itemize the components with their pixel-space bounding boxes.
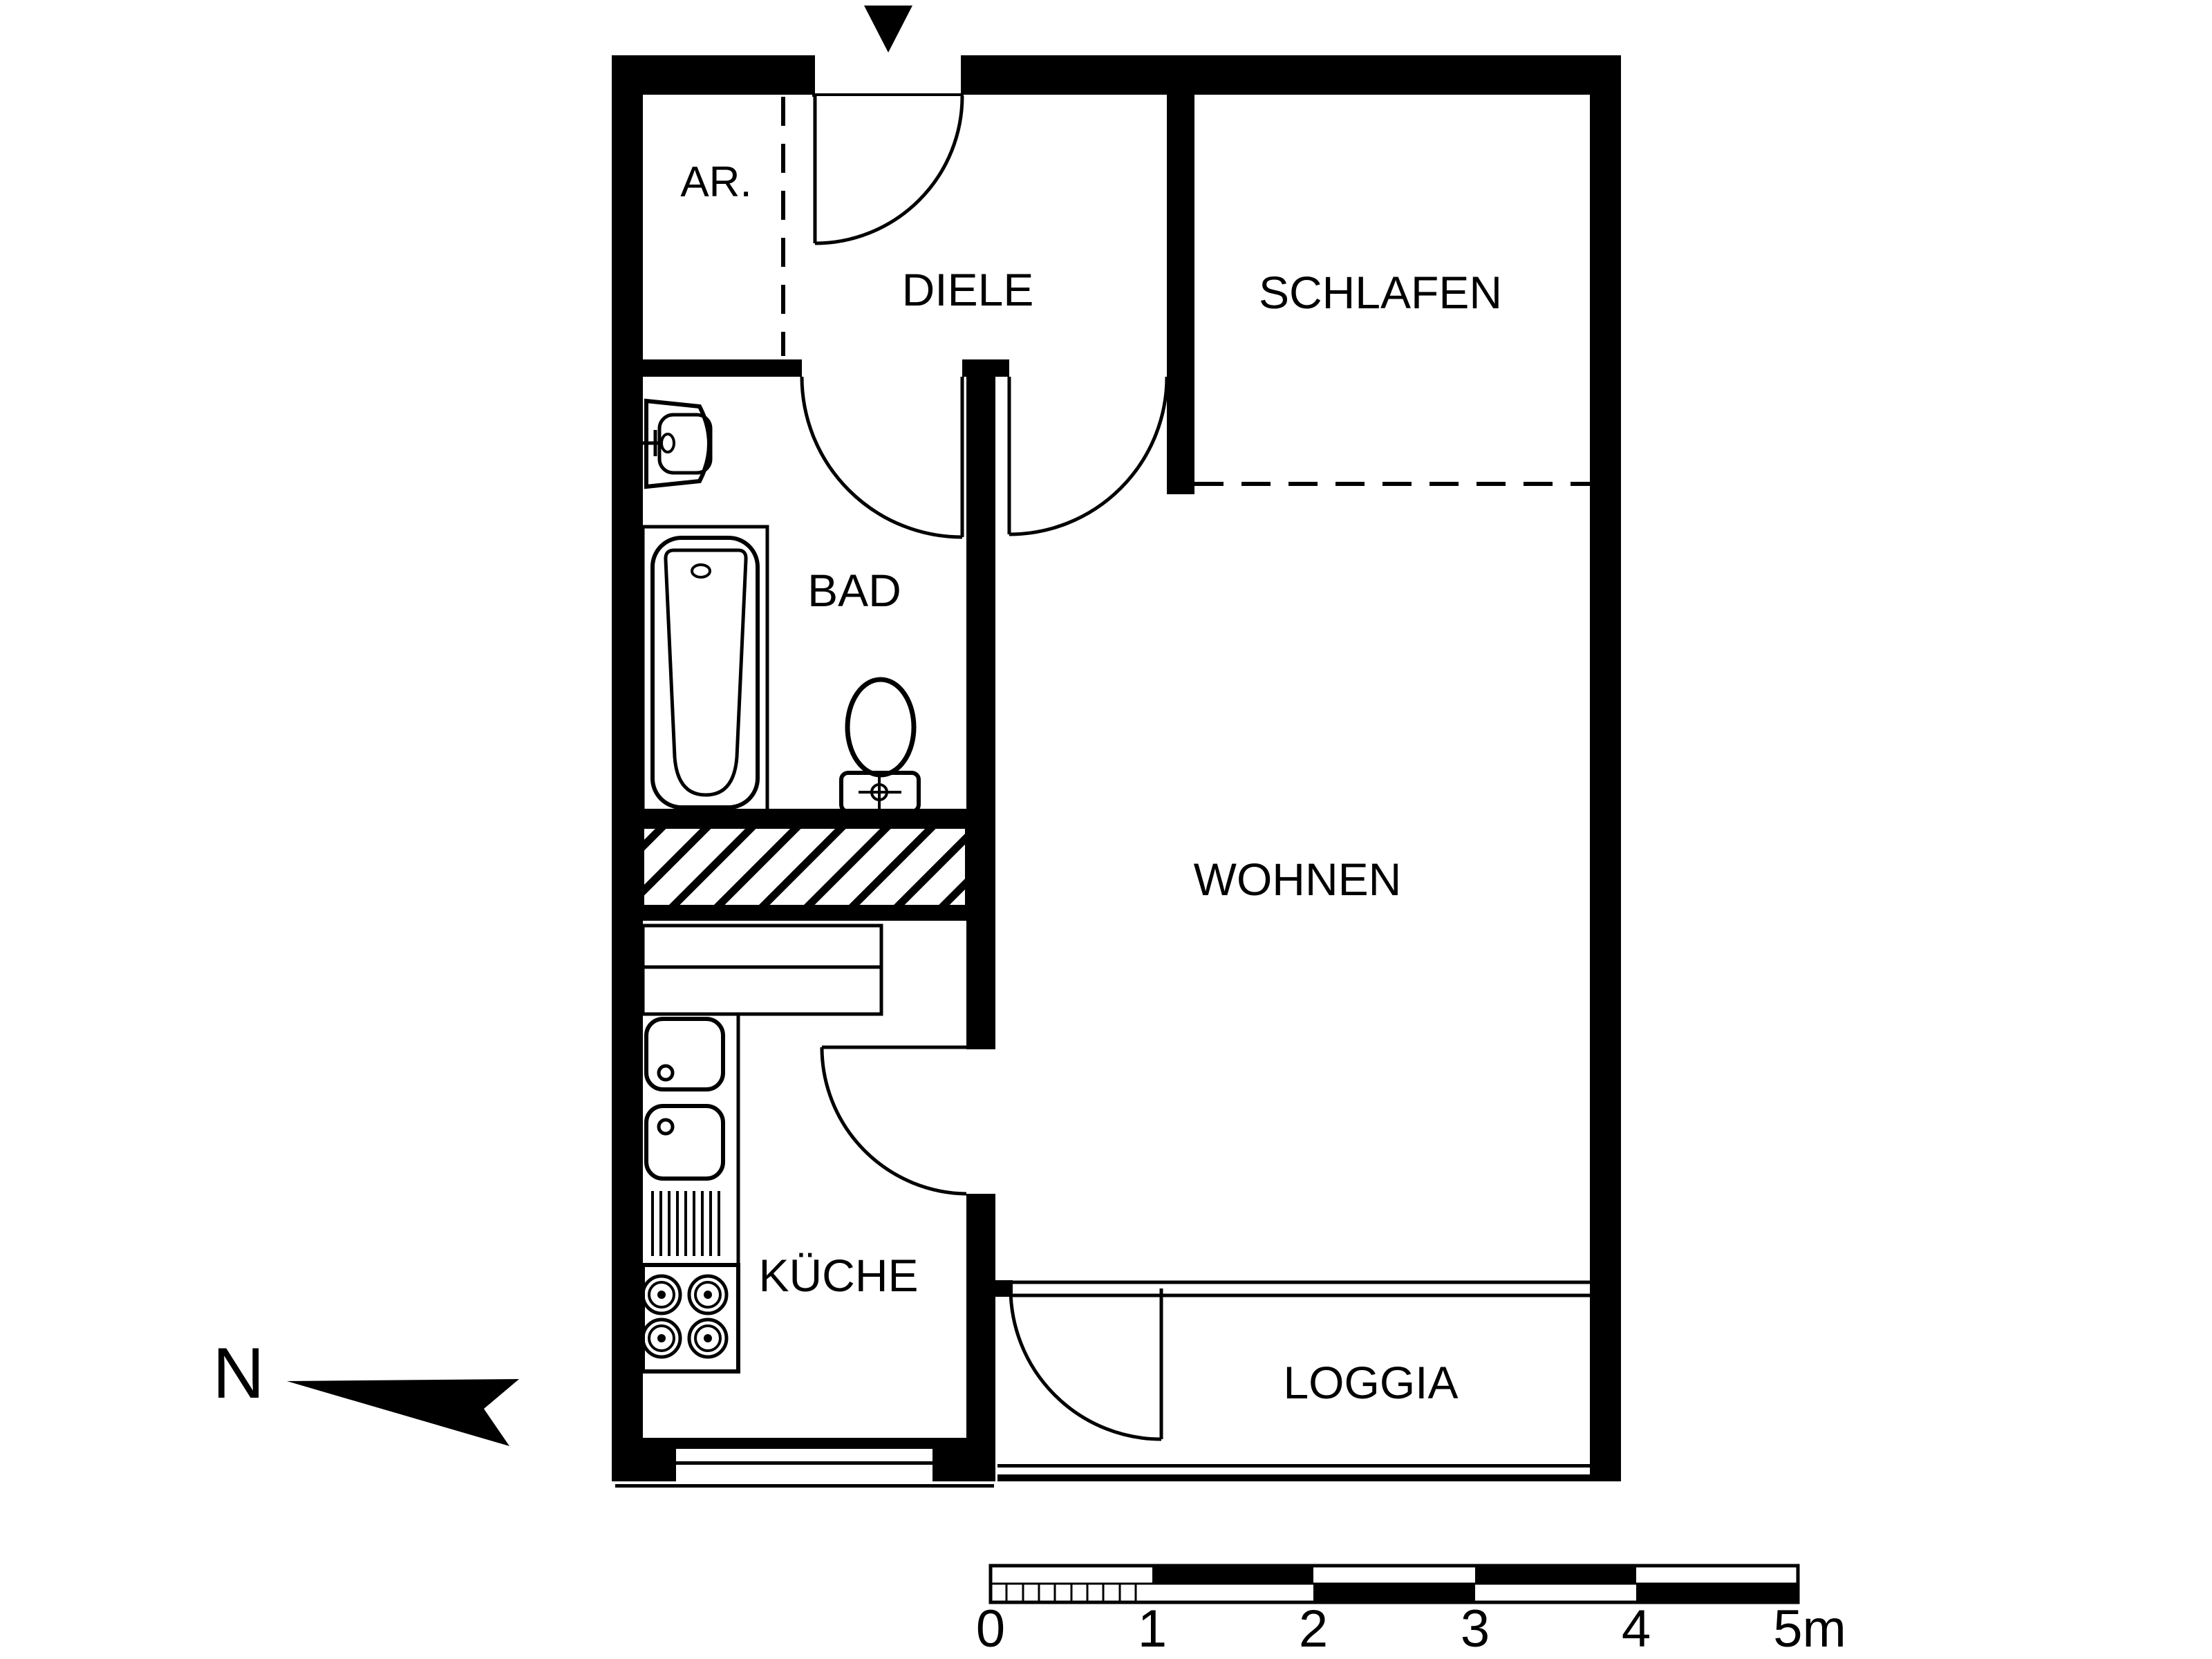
- floorplan-page: AR. DIELE SCHLAFEN BAD WOHNEN KÜCHE LOGG…: [0, 0, 2212, 1659]
- sink-drain-2: [659, 1120, 673, 1134]
- label-schlafen: SCHLAFEN: [1259, 267, 1502, 318]
- label-kueche: KÜCHE: [758, 1250, 918, 1301]
- scale-label-4: 4: [1622, 1600, 1651, 1658]
- stove-burner: [643, 1276, 680, 1313]
- sink-drainer-icon: [653, 1191, 719, 1256]
- stove-icon: [643, 1265, 738, 1371]
- kitchen-window-top-strip: [676, 1438, 932, 1449]
- toilet-bowl: [847, 679, 914, 775]
- label-bad: BAD: [807, 565, 901, 616]
- room-labels: AR. DIELE SCHLAFEN BAD WOHNEN KÜCHE LOGG…: [680, 158, 1502, 1408]
- scale-label-2: 2: [1299, 1600, 1328, 1658]
- stove-burner: [643, 1320, 680, 1357]
- kueche-door: [822, 1047, 966, 1194]
- wall-bad-wohnen-upper: [966, 359, 995, 1049]
- scale-label-1: 1: [1138, 1600, 1167, 1658]
- label-ar: AR.: [680, 158, 751, 206]
- burner-center: [657, 1291, 666, 1299]
- entrance-door-swing-arc: [815, 96, 962, 243]
- wall-right-exterior: [1590, 55, 1621, 1481]
- scale-bar-labels: 0 1 2 3 4 5m: [976, 1600, 1846, 1658]
- north-indicator: N: [212, 1333, 519, 1446]
- wall-ar-bad-top: [612, 359, 802, 377]
- bathtub-enclosure: [643, 527, 767, 818]
- entrance-door: [815, 96, 962, 243]
- sink-bowl-1: [646, 1019, 723, 1089]
- bad-door: [802, 377, 962, 537]
- scale-cell-top-1-2: [1152, 1566, 1313, 1584]
- wall-left-exterior: [612, 55, 643, 1481]
- north-label: N: [212, 1333, 264, 1414]
- toilet-icon: [841, 679, 919, 814]
- scale-bar: 0 1 2 3 4 5m: [976, 1566, 1846, 1658]
- entrance: [814, 6, 962, 97]
- sink-drain-1: [659, 1066, 673, 1080]
- kitchen-counter-lower: [643, 967, 881, 1014]
- wall-shaft-bottom: [639, 906, 966, 921]
- wall-top-right: [962, 55, 1621, 95]
- entrance-arrow-icon: [864, 6, 912, 53]
- loggia-parapet-thick-line: [997, 1474, 1590, 1481]
- scale-cell-bottom-2-3: [1313, 1584, 1475, 1602]
- scale-label-5m: 5m: [1773, 1600, 1846, 1658]
- wall-kitchen-bottom-left: [612, 1438, 676, 1481]
- kitchen-window-sill-line: [615, 1484, 994, 1488]
- sink-bowl-2: [646, 1106, 723, 1179]
- kitchen-counter-upper: [643, 926, 881, 967]
- wall-diele-schlafen: [1167, 93, 1194, 494]
- wohnen-door-swing-arc: [1009, 377, 1167, 534]
- bathtub-drain: [692, 565, 710, 577]
- washbasin-bowl: [659, 415, 711, 473]
- kitchen-sink-icon: [646, 1019, 723, 1179]
- washbasin-icon: [635, 401, 711, 487]
- loggia-door-swing-arc: [1011, 1288, 1161, 1439]
- label-diele: DIELE: [902, 264, 1034, 315]
- shaft-hatched-area: [643, 827, 966, 906]
- burner-center: [704, 1291, 712, 1299]
- stove-burner: [689, 1276, 727, 1313]
- kitchen-fixtures: [643, 926, 881, 1371]
- burner-center: [657, 1334, 666, 1342]
- label-wohnen: WOHNEN: [1194, 854, 1402, 905]
- washbasin-tap: [662, 434, 674, 452]
- wohnen-door: [1009, 377, 1167, 534]
- loggia-door: [1011, 1288, 1161, 1439]
- loggia-parapet-thin-line: [997, 1464, 1590, 1468]
- scale-label-3: 3: [1461, 1600, 1490, 1658]
- wall-kitchen-bottom-right: [932, 1438, 994, 1481]
- burner-center: [704, 1334, 712, 1342]
- bathtub-basin: [666, 550, 746, 795]
- north-arrow-icon: [287, 1379, 519, 1446]
- bad-door-swing-arc: [802, 377, 962, 537]
- scale-label-0: 0: [976, 1600, 1005, 1658]
- loggia-window-front: [1013, 1282, 1590, 1295]
- kueche-door-swing-arc: [822, 1047, 966, 1194]
- scale-cell-top-3-4: [1475, 1566, 1636, 1584]
- label-loggia: LOGGIA: [1283, 1357, 1458, 1408]
- kitchen-window-mid-line: [676, 1461, 932, 1465]
- floorplan-drawing: AR. DIELE SCHLAFEN BAD WOHNEN KÜCHE LOGG…: [0, 0, 2212, 1659]
- bathtub-icon: [643, 527, 767, 818]
- stove-burner: [689, 1320, 727, 1357]
